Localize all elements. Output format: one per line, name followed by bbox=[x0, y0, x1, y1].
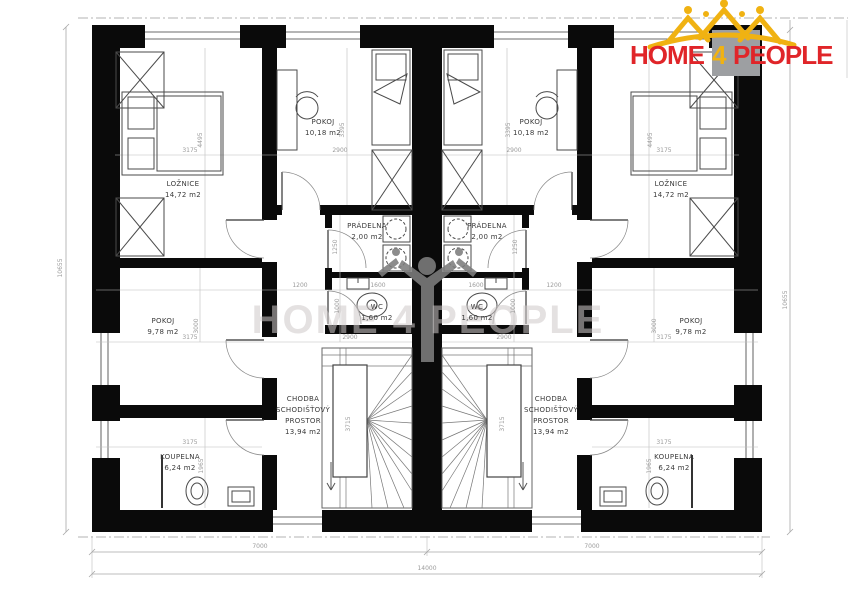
room-label: WC bbox=[371, 303, 383, 311]
dimension-label: 10655 bbox=[57, 258, 64, 277]
room-label: 2,00 m2 bbox=[471, 233, 502, 241]
room-label: 13,94 m2 bbox=[533, 428, 569, 436]
wardrobe bbox=[116, 198, 164, 256]
room-label: 10,18 m2 bbox=[305, 129, 341, 137]
dimension-label: 1600 bbox=[370, 282, 385, 289]
room-label: 10,18 m2 bbox=[513, 129, 549, 137]
room-label: 9,78 m2 bbox=[675, 328, 706, 336]
dimension-label: 1200 bbox=[546, 282, 561, 289]
dimension-label: 14000 bbox=[417, 565, 436, 572]
logo-4: 4 bbox=[712, 40, 727, 70]
room-label: 13,94 m2 bbox=[285, 428, 321, 436]
room-label: 14,72 m2 bbox=[165, 191, 201, 199]
room-label: 1,60 m2 bbox=[461, 314, 492, 322]
room-label: 6,24 m2 bbox=[164, 464, 195, 472]
room-label: KOUPELNA bbox=[160, 453, 200, 461]
dimension-label: 3395 bbox=[339, 122, 346, 137]
floor-plan-canvas: HOME 4 PEOPLE LOŽNICE14,72 m2POKOJ10,18 … bbox=[0, 0, 853, 600]
dimension-label: 1600 bbox=[468, 282, 483, 289]
dimension-label: 1000 bbox=[334, 298, 341, 313]
dimension-label: 3395 bbox=[505, 122, 512, 137]
dimension-label: 3175 bbox=[656, 439, 671, 446]
floor-plan-page: HOME 4 PEOPLE LOŽNICE14,72 m2POKOJ10,18 … bbox=[0, 0, 853, 600]
dimension-label: 3175 bbox=[656, 147, 671, 154]
room-label: PROSTOR bbox=[533, 417, 569, 425]
room-label: 1,60 m2 bbox=[361, 314, 392, 322]
door-arc bbox=[226, 340, 264, 378]
room-label: CHODBA bbox=[287, 395, 319, 403]
room-label: POKOJ bbox=[679, 317, 702, 325]
room-label: 14,72 m2 bbox=[653, 191, 689, 199]
unit-right-geometry bbox=[427, 25, 762, 532]
dimension-label: 2900 bbox=[332, 147, 347, 154]
room-label: POKOJ bbox=[311, 118, 334, 126]
dimension-label: 3175 bbox=[656, 334, 671, 341]
dimension-label: 1000 bbox=[510, 298, 517, 313]
desk bbox=[277, 70, 297, 150]
room-label: KOUPELNA bbox=[654, 453, 694, 461]
sink bbox=[347, 278, 369, 289]
chair bbox=[296, 92, 318, 119]
unit-left-geometry bbox=[92, 25, 427, 532]
logo-people: PEOPLE bbox=[733, 40, 833, 70]
room-label: POKOJ bbox=[151, 317, 174, 325]
staircase bbox=[322, 348, 412, 508]
dimension-label: 1250 bbox=[512, 239, 519, 254]
dimension-label: 3715 bbox=[499, 416, 506, 431]
sink bbox=[228, 487, 254, 506]
dimension-label: 3175 bbox=[182, 439, 197, 446]
dimension-label: 2900 bbox=[342, 334, 357, 341]
dimension-label: 2900 bbox=[496, 334, 511, 341]
dimension-label: 2900 bbox=[506, 147, 521, 154]
bed-single bbox=[372, 50, 410, 145]
room-label: PRÁDELNA bbox=[467, 221, 507, 230]
wardrobe bbox=[372, 150, 412, 210]
dimension-label: 1965 bbox=[646, 458, 653, 473]
dimension-label: 3000 bbox=[193, 318, 200, 333]
dimension-label: 1200 bbox=[292, 282, 307, 289]
dimension-label: 4495 bbox=[197, 132, 204, 147]
logo-home: HOME bbox=[630, 40, 705, 70]
room-label: 6,24 m2 bbox=[658, 464, 689, 472]
door-arc bbox=[226, 220, 264, 258]
room-label: 9,78 m2 bbox=[147, 328, 178, 336]
room-label: 2,00 m2 bbox=[351, 233, 382, 241]
dimension-label: 7000 bbox=[252, 543, 267, 550]
dimension-label: 3175 bbox=[182, 334, 197, 341]
dimension-label: 1250 bbox=[332, 239, 339, 254]
room-label: WC bbox=[471, 303, 483, 311]
dimension-label: 7000 bbox=[584, 543, 599, 550]
watermark: HOME 4 PEOPLE bbox=[252, 248, 605, 362]
bed-double bbox=[122, 92, 223, 175]
room-label: PROSTOR bbox=[285, 417, 321, 425]
door-arc bbox=[282, 172, 320, 210]
logo-text: HOME 4 PEOPLE bbox=[630, 40, 833, 70]
room-label: LOŽNICE bbox=[167, 179, 200, 188]
door-arc bbox=[226, 420, 264, 455]
dimension-label: 10655 bbox=[782, 290, 789, 309]
watermark-text: HOME 4 PEOPLE bbox=[252, 298, 605, 342]
dimension-label: 3175 bbox=[182, 147, 197, 154]
room-label: SCHODIŠŤOVÝ bbox=[276, 405, 330, 414]
room-label: LOŽNICE bbox=[655, 179, 688, 188]
dimension-label: 1965 bbox=[198, 458, 205, 473]
room-label: SCHODIŠŤOVÝ bbox=[524, 405, 578, 414]
room-label: CHODBA bbox=[535, 395, 567, 403]
room-label: POKOJ bbox=[519, 118, 542, 126]
dimension-label: 3715 bbox=[345, 416, 352, 431]
windows bbox=[92, 25, 360, 532]
room-label: PRÁDELNA bbox=[347, 221, 387, 230]
dimension-label: 3000 bbox=[651, 318, 658, 333]
dimension-label: 4495 bbox=[647, 132, 654, 147]
